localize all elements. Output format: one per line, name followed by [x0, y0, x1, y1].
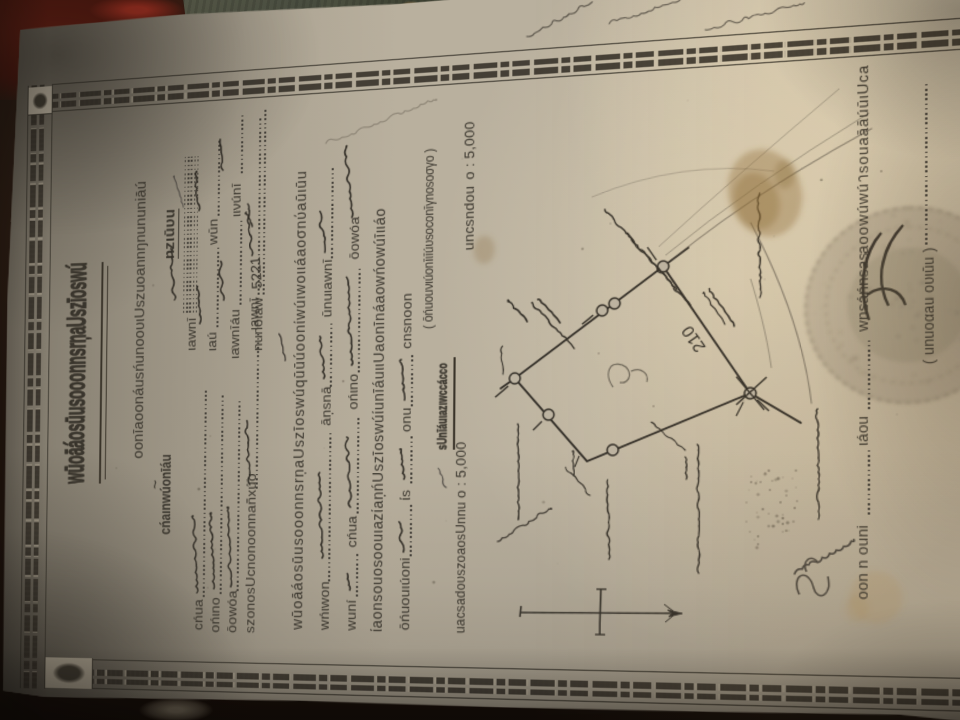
svg-text:5221: 5221 — [247, 256, 264, 290]
